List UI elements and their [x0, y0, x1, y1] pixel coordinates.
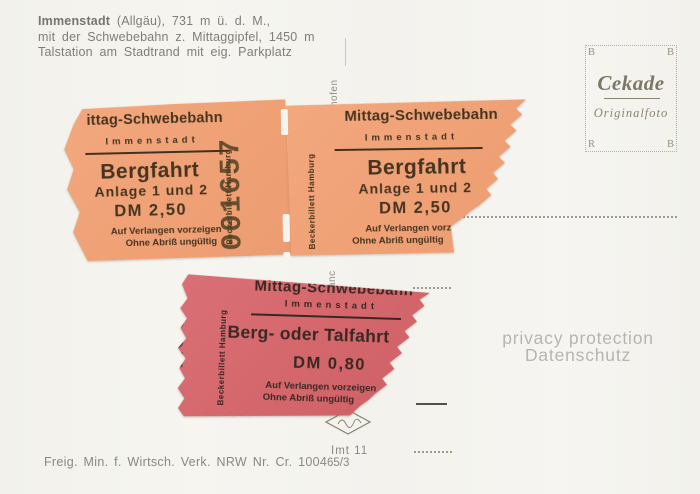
ticket-rule — [335, 147, 483, 151]
ticket-title: Mittag-Schwebebahn — [331, 107, 511, 126]
ticket-printer-name: Beckerbillett Hamburg — [306, 153, 318, 249]
address-dotted-line — [414, 451, 452, 453]
ticket-price: DM 2,50 — [76, 200, 226, 222]
ticket-fare-detail: Anlage 1 und 2 — [325, 180, 505, 198]
perforation-dash — [283, 214, 290, 242]
ticket-price: DM 0,80 — [239, 352, 419, 376]
caption-line-2: mit der Schwebebahn z. Mittaggipfel, 145… — [38, 30, 315, 46]
stamp-box: B B R B Cekade Originalfoto — [585, 45, 677, 152]
ticket-title: Mittag-Schwebebahn — [244, 278, 424, 300]
ticket-fare-type: Bergfahrt — [327, 155, 507, 181]
ticket-price: DM 2,50 — [325, 198, 505, 219]
ticket-paper: 001534 Beckerbillett Hamburg Mittag-Schw… — [176, 270, 433, 428]
ticket-orange-right: 001656 Beckerbillett Hamburg Mittag-Schw… — [286, 94, 533, 257]
stamp-corner-letter: B — [667, 139, 674, 150]
imprint-code-line2: 65/3 — [327, 457, 349, 469]
ticket-serial-number: 001657 — [216, 137, 249, 251]
license-note: Freig. Min. f. Wirtsch. Verk. NRW Nr. Cr… — [44, 455, 327, 469]
ticket-paper: ittag-Schwebebahn Immenstadt Bergfahrt A… — [56, 96, 292, 263]
divider-line — [345, 38, 346, 66]
ticket-place: Immenstadt — [321, 132, 501, 145]
ticket-place: Immenstadt — [241, 298, 421, 314]
stamp-corner-letter: B — [588, 47, 595, 58]
postcard-scan: Immenstadt (Allgäu), 731 m ü. d. M., mit… — [0, 0, 700, 494]
privacy-watermark-line2: Datenschutz — [468, 347, 688, 364]
ticket-rule — [251, 313, 401, 320]
perforation-dash — [283, 252, 290, 260]
ticket-note-1: Auf Verlangen vorzeigen — [331, 223, 511, 236]
ticket-fare-type: Berg- oder Talfahrt — [218, 322, 399, 347]
caption-line-3: Talstation am Stadtrand mit eig. Parkpla… — [38, 45, 315, 61]
ticket-serial-number: 001534 — [158, 290, 194, 408]
ticket-fare-detail: Anlage 1 und 2 — [76, 182, 226, 201]
ticket-rule — [85, 150, 229, 155]
stamp-corner-letter: R — [588, 139, 595, 150]
brand-underline — [604, 98, 660, 99]
caption-place: Immenstadt — [38, 14, 110, 28]
imprint-code-line1: Imt 11 — [331, 445, 368, 457]
caption-line-1: Immenstadt (Allgäu), 731 m ü. d. M., — [38, 14, 315, 30]
photo-brand-subtitle: Originalfoto — [586, 106, 676, 121]
ticket-paper: 001656 Beckerbillett Hamburg Mittag-Schw… — [286, 94, 533, 257]
ticket-title: ittag-Schwebebahn — [79, 111, 229, 130]
perforation-dash — [281, 109, 288, 135]
photo-brand-logo: Cekade — [586, 71, 676, 96]
privacy-watermark: privacy protection Datenschutz — [468, 330, 688, 363]
ticket-place: Immenstadt — [77, 135, 227, 149]
caption-block: Immenstadt (Allgäu), 731 m ü. d. M., mit… — [38, 14, 315, 61]
ticket-pink: 001534 Beckerbillett Hamburg Mittag-Schw… — [176, 270, 433, 428]
ticket-orange-left: ittag-Schwebebahn Immenstadt Bergfahrt A… — [56, 96, 292, 263]
stamp-corner-letter: B — [667, 47, 674, 58]
ticket-note-2: Ohne Abriß ungültig — [308, 235, 488, 248]
